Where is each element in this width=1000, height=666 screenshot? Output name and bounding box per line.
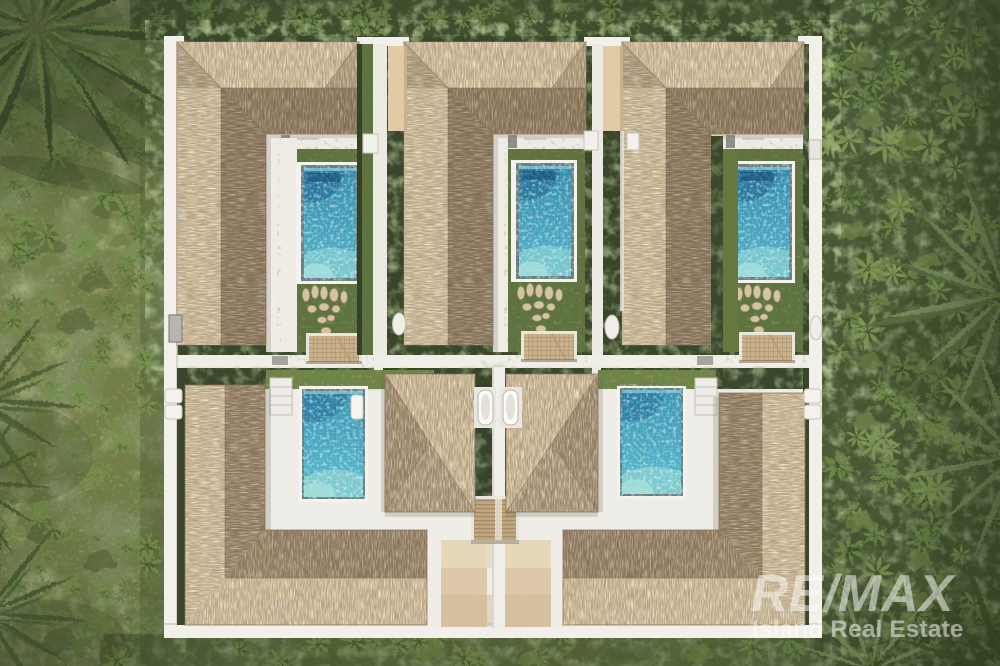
svg-text:RE/MAX: RE/MAX	[751, 564, 956, 622]
svg-text:Island Real Estate: Island Real Estate	[752, 616, 964, 643]
